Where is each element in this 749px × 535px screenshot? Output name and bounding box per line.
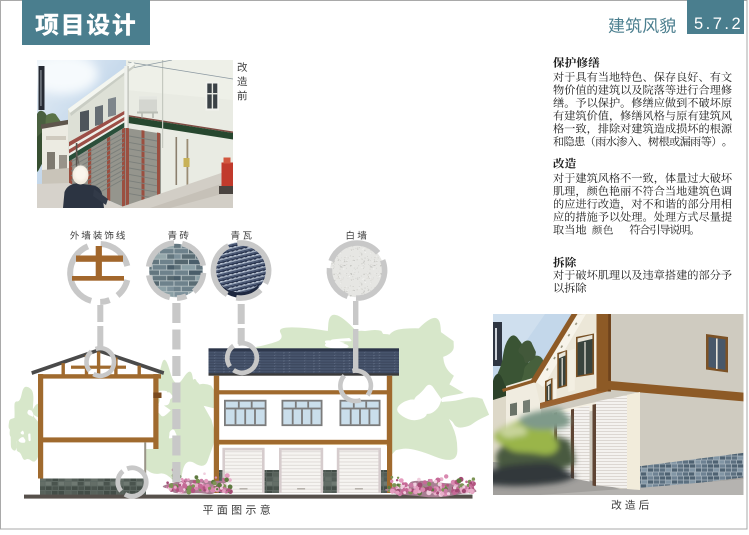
svg-text:5.7.2: 5.7.2 <box>694 15 743 33</box>
